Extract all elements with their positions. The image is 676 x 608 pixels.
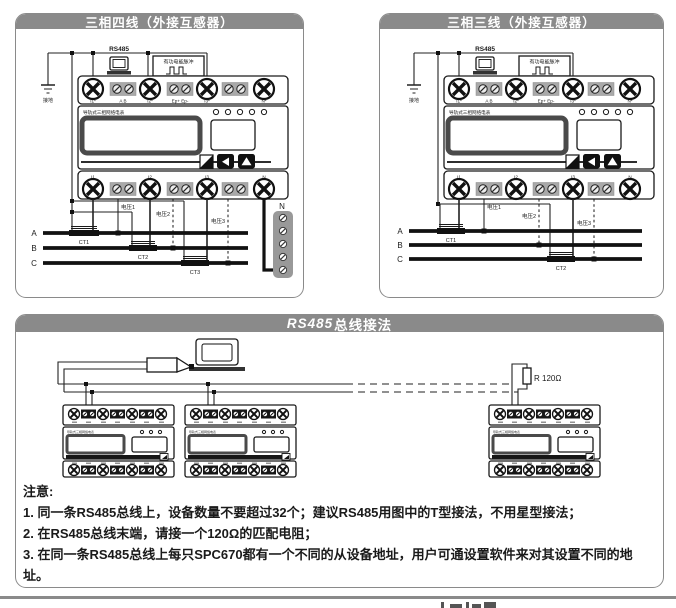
four-wire-diagram: 接地 RS485 有功电能脉冲 — [16, 29, 302, 296]
panel-three-phase-three-wire: 三相三线（外接互感器） 接地 RS485 有功 — [379, 13, 664, 298]
phase-a-label: A — [397, 227, 403, 236]
ground-symbol: 接地 — [407, 53, 421, 104]
bus-meter-3 — [489, 405, 600, 477]
note-item-3: 3. 在同一条RS485总线上每只SPC670都有一个不同的从设备地址，用户可通… — [23, 544, 657, 586]
meter-four-wire — [78, 76, 288, 199]
bottom-section-rule — [0, 596, 676, 599]
ct2-label: CT2 — [138, 255, 148, 261]
pulse-label: 有功电能脉冲 — [163, 59, 193, 66]
panel-title-three-wire: 三相三线（外接互感器） — [380, 14, 663, 29]
voltage1-label: 电压1 — [121, 203, 135, 211]
rs485-title-cjk: 总线接法 — [334, 314, 392, 334]
ct1-label: CT1 — [446, 238, 456, 244]
note-item-1: 1. 同一条RS485总线上，设备数量不要超过32个；建议RS485用图中的T型… — [23, 502, 657, 523]
ct3-label: CT3 — [190, 270, 200, 276]
computer-icon — [473, 57, 497, 75]
resistor-icon — [523, 368, 531, 384]
three-wire-diagram: 接地 RS485 有功电能脉冲 — [380, 29, 662, 296]
panel-rs485-bus: RS485 总线接法 — [15, 314, 664, 588]
notes-block: 注意: 1. 同一条RS485总线上，设备数量不要超过32个；建议RS485用图… — [23, 481, 657, 586]
rs485-converter — [147, 358, 194, 372]
bus-meter-2 — [185, 405, 296, 477]
bus-meter-1 — [63, 405, 174, 477]
panel-title-text: 三相三线（外接互感器） — [447, 13, 596, 31]
phase-a-label: A — [31, 229, 37, 238]
wiring-diagram-page: { "headers": { "four_wire": "三相四线（外接互感器）… — [0, 0, 676, 608]
ground-symbol: 接地 — [41, 53, 55, 104]
phase-lines: A B C — [397, 227, 642, 264]
note-item-2: 2. 在RS485总线末端，请接一个120Ω的匹配电阻； — [23, 523, 657, 544]
panel-three-phase-four-wire: 三相四线（外接互感器） 接地 RS485 — [15, 13, 304, 298]
rs485-label: RS485 — [475, 46, 495, 53]
rs485-bus-diagram: R 120Ω — [16, 332, 662, 482]
converter-icon — [147, 358, 177, 372]
rs485-title-latin: RS485 — [287, 316, 333, 331]
panel-title-four-wire: 三相四线（外接互感器） — [16, 14, 303, 29]
voltage2-label: 电压2 — [522, 212, 536, 220]
rs485-label: RS485 — [109, 46, 129, 53]
rs485-port: RS485 — [473, 46, 497, 75]
notes-title: 注意: — [23, 481, 657, 502]
host-computer — [189, 339, 245, 371]
bus-wiring — [58, 362, 518, 405]
voltage1-label: 电压1 — [487, 203, 501, 211]
pulse-output: 有功电能脉冲 — [153, 56, 204, 76]
neutral-bus: N — [264, 199, 293, 278]
panel-title-rs485: RS485 总线接法 — [16, 315, 663, 332]
termination-resistor: R 120Ω — [512, 364, 561, 405]
ct2-label: CT2 — [556, 266, 566, 272]
voltage3-label: 电压3 — [577, 219, 591, 227]
phase-c-label: C — [31, 259, 37, 268]
ct-secondary-wiring — [436, 199, 573, 256]
phase-b-label: B — [397, 241, 402, 250]
phase-c-label: C — [397, 255, 403, 264]
ground-label: 接地 — [43, 97, 53, 104]
panel-title-text: 三相四线（外接互感器） — [85, 13, 234, 31]
pulse-label: 有功电能脉冲 — [529, 59, 559, 66]
voltage2-label: 电压2 — [156, 210, 170, 218]
voltage3-label: 电压3 — [211, 217, 225, 225]
neutral-bus-label: N — [279, 202, 285, 211]
phase-b-label: B — [31, 244, 36, 253]
computer-icon — [107, 57, 131, 75]
rs485-port: RS485 — [107, 46, 131, 75]
resistor-label: R 120Ω — [534, 374, 561, 383]
ground-label: 接地 — [409, 97, 419, 104]
ct1-label: CT1 — [79, 240, 89, 246]
meter-three-wire — [444, 76, 654, 199]
pulse-output: 有功电能脉冲 — [519, 56, 570, 76]
